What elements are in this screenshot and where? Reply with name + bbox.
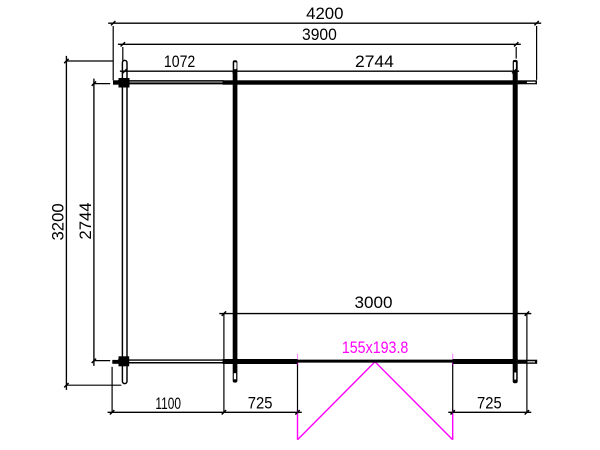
svg-text:3900: 3900: [302, 25, 337, 44]
svg-text:2744: 2744: [355, 52, 394, 71]
svg-text:155x193.8: 155x193.8: [342, 338, 409, 357]
svg-text:3000: 3000: [355, 293, 393, 312]
svg-text:4200: 4200: [306, 4, 343, 23]
svg-text:1100: 1100: [155, 394, 181, 413]
svg-text:2744: 2744: [76, 202, 95, 239]
svg-text:1072: 1072: [164, 52, 195, 71]
svg-text:725: 725: [477, 394, 502, 413]
svg-text:3200: 3200: [49, 203, 68, 240]
svg-text:725: 725: [248, 394, 273, 413]
